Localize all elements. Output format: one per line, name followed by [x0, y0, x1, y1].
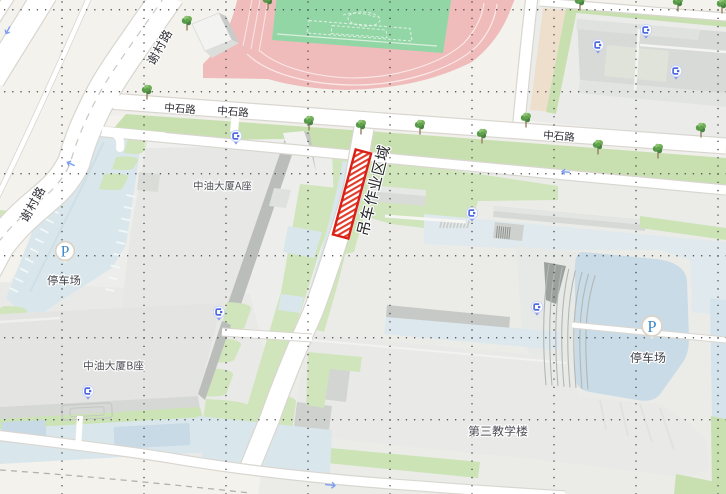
svg-text:P: P: [647, 317, 656, 336]
svg-text:P: P: [61, 243, 70, 260]
